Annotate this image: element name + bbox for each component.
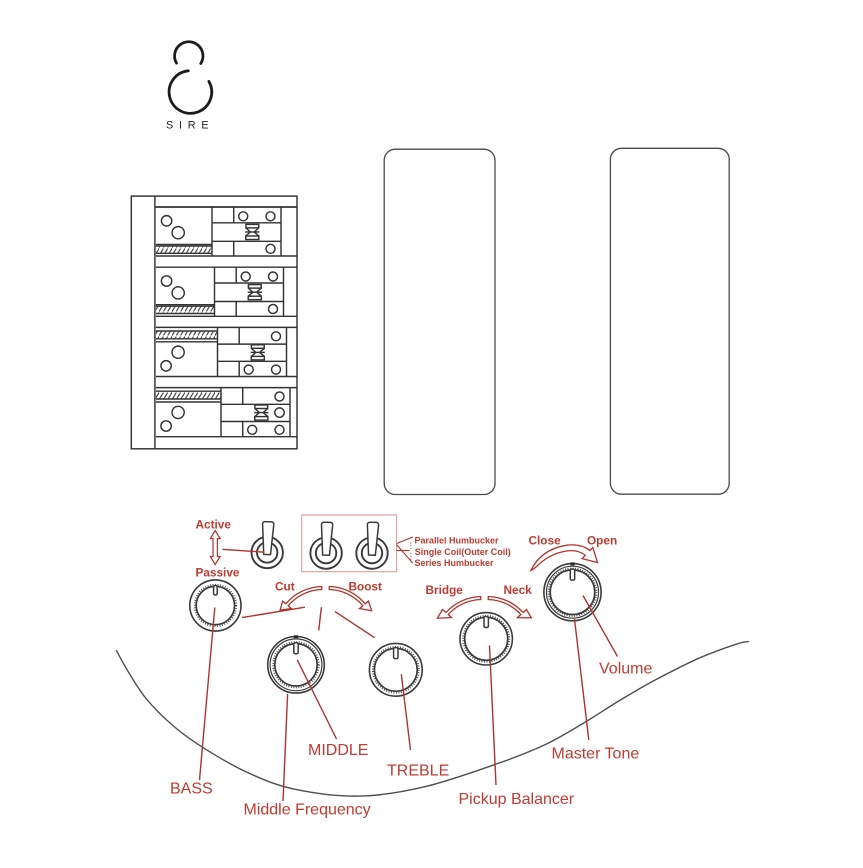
svg-text:Parallel Humbucker: Parallel Humbucker: [415, 536, 500, 546]
svg-text:Series Humbucker: Series Humbucker: [415, 558, 495, 568]
svg-text:Passive: Passive: [196, 566, 240, 580]
svg-text:Close: Close: [529, 534, 562, 548]
svg-text:SIRE: SIRE: [166, 119, 214, 131]
svg-text:Bridge: Bridge: [426, 583, 464, 597]
svg-text:Pickup Balancer: Pickup Balancer: [459, 791, 575, 808]
svg-text:Single Coil(Outer Coil): Single Coil(Outer Coil): [415, 547, 511, 557]
svg-text:MIDDLE: MIDDLE: [308, 742, 368, 759]
svg-text:TREBLE: TREBLE: [387, 763, 449, 780]
svg-text:Boost: Boost: [349, 580, 382, 594]
svg-text:Neck: Neck: [504, 583, 533, 597]
svg-text:Volume: Volume: [599, 661, 652, 678]
svg-text:Master Tone: Master Tone: [552, 746, 640, 763]
svg-text:Middle Frequency: Middle Frequency: [244, 802, 371, 819]
svg-text:Active: Active: [196, 518, 232, 532]
svg-text:Open: Open: [587, 534, 617, 548]
svg-text:Cut: Cut: [275, 580, 295, 594]
svg-text:BASS: BASS: [170, 781, 213, 798]
